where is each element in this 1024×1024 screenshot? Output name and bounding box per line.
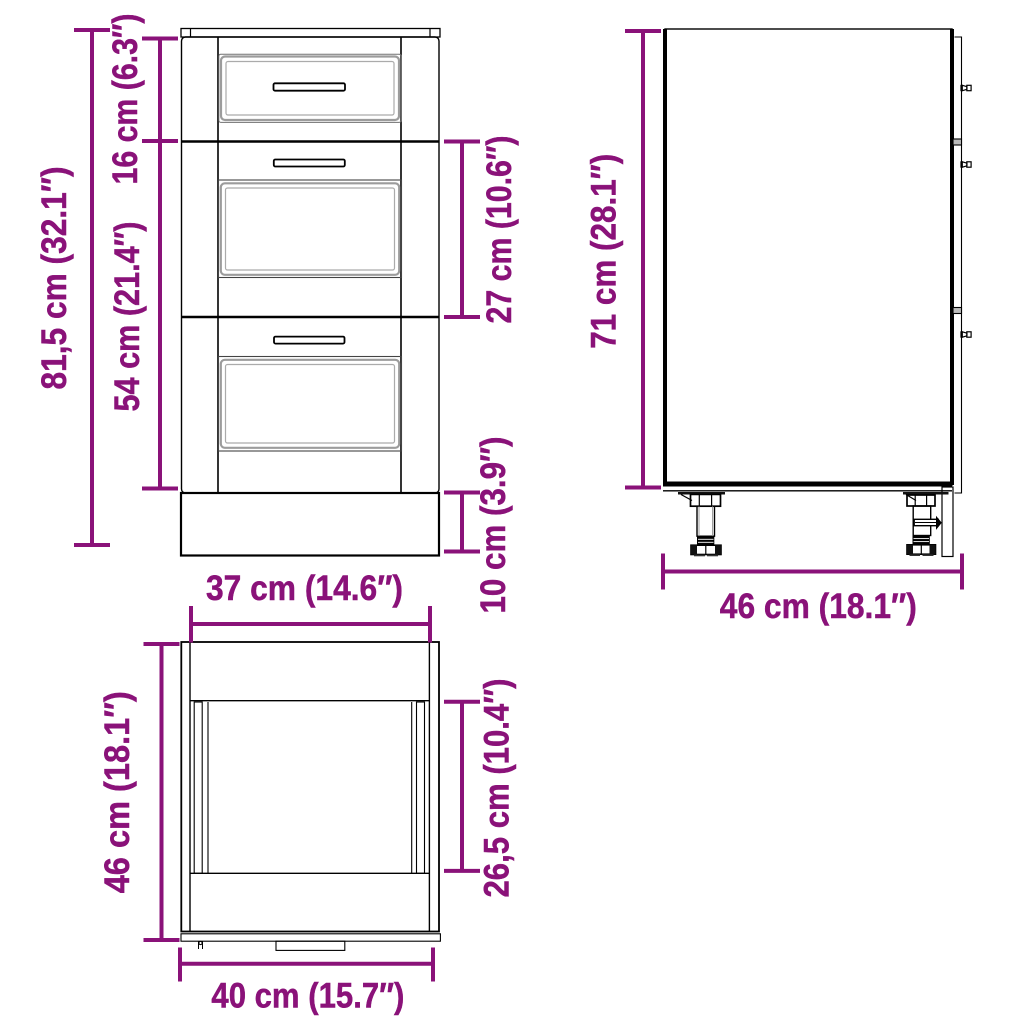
svg-text:54 cm (21.4″): 54 cm (21.4″) [107, 222, 147, 412]
svg-text:46 cm (18.1″): 46 cm (18.1″) [97, 691, 137, 893]
svg-text:37 cm (14.6″): 37 cm (14.6″) [206, 568, 403, 608]
svg-text:71 cm (28.1″): 71 cm (28.1″) [584, 154, 624, 349]
svg-text:16 cm (6.3″): 16 cm (6.3″) [105, 14, 145, 185]
svg-text:46 cm (18.1″): 46 cm (18.1″) [720, 586, 917, 626]
svg-text:40 cm (15.7″): 40 cm (15.7″) [211, 975, 404, 1015]
svg-text:27 cm (10.6″): 27 cm (10.6″) [479, 136, 519, 324]
svg-text:26,5 cm (10.4″): 26,5 cm (10.4″) [476, 679, 516, 898]
svg-text:10 cm (3.9″): 10 cm (3.9″) [473, 437, 513, 614]
svg-text:81,5 cm (32.1″): 81,5 cm (32.1″) [34, 167, 74, 390]
